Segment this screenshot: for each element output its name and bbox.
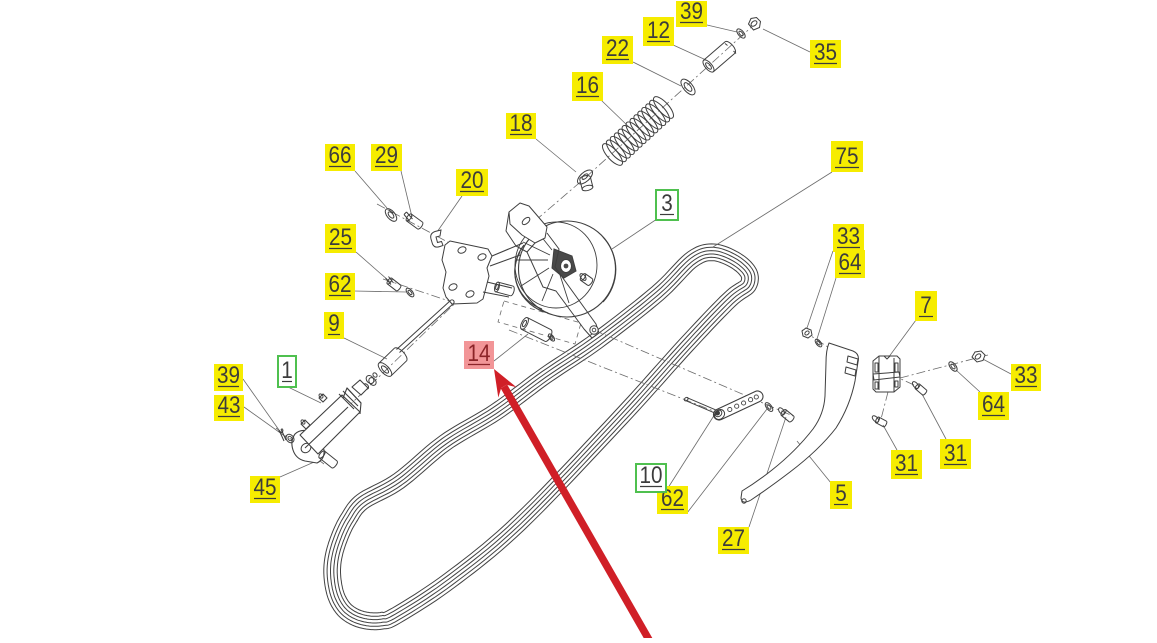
svg-text:29: 29 [375, 142, 398, 169]
svg-text:9: 9 [328, 310, 340, 337]
svg-text:20: 20 [461, 167, 484, 194]
svg-text:10: 10 [640, 462, 663, 489]
svg-text:5: 5 [835, 480, 847, 507]
svg-text:33: 33 [837, 223, 860, 250]
svg-text:64: 64 [982, 391, 1005, 418]
svg-text:75: 75 [836, 143, 859, 170]
svg-text:39: 39 [217, 362, 240, 389]
svg-text:12: 12 [647, 17, 670, 44]
svg-text:16: 16 [576, 72, 599, 99]
svg-text:18: 18 [510, 110, 533, 137]
svg-text:43: 43 [218, 392, 241, 419]
svg-text:64: 64 [839, 249, 862, 276]
svg-text:39: 39 [680, 0, 703, 25]
svg-text:1: 1 [281, 357, 293, 384]
svg-text:14: 14 [468, 340, 491, 367]
svg-text:27: 27 [722, 525, 745, 552]
svg-text:25: 25 [329, 224, 352, 251]
svg-text:66: 66 [329, 142, 352, 169]
svg-text:31: 31 [944, 440, 967, 467]
svg-text:7: 7 [920, 292, 932, 319]
svg-text:33: 33 [1015, 362, 1038, 389]
svg-text:31: 31 [895, 450, 918, 477]
svg-text:22: 22 [606, 35, 629, 62]
svg-text:35: 35 [814, 39, 837, 66]
svg-text:62: 62 [329, 271, 352, 298]
svg-text:45: 45 [254, 474, 277, 501]
svg-text:3: 3 [661, 190, 673, 217]
